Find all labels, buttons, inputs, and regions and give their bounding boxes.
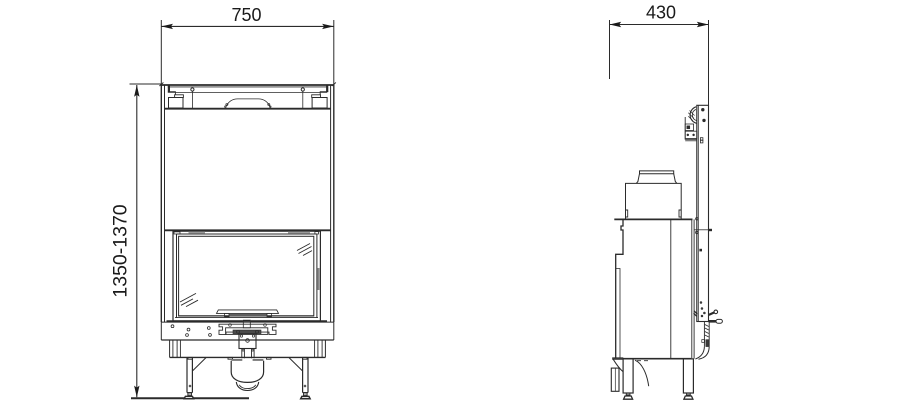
svg-text:430: 430: [646, 3, 676, 23]
svg-text:1350-1370: 1350-1370: [110, 204, 132, 297]
svg-text:750: 750: [231, 5, 261, 25]
